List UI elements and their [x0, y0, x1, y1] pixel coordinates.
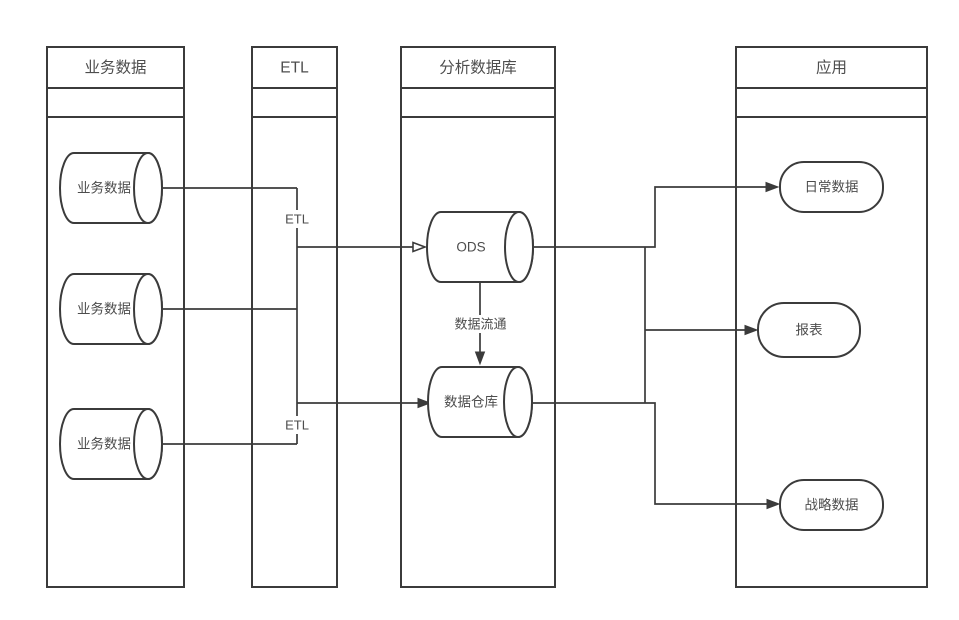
cylinder-business-data-2: 业务数据: [60, 274, 162, 344]
cylinder-business-data-1: 业务数据: [60, 153, 162, 223]
svg-text:ETL: ETL: [285, 418, 309, 433]
dataflow-diagram: 业务数据 ETL 分析数据库 应用: [0, 0, 959, 620]
node-label: 战略数据: [805, 498, 859, 513]
edge-label-data-flow: 数据流通: [451, 315, 510, 333]
cylinder-label: 业务数据: [77, 437, 131, 452]
edge-warehouse-to-strategy: [532, 403, 767, 504]
lane-title-application: 应用: [816, 58, 847, 77]
cylinder-label: 数据仓库: [444, 395, 498, 410]
cylinder-label: ODS: [456, 240, 485, 255]
diagram-canvas: 业务数据 ETL 分析数据库 应用: [0, 0, 959, 620]
cylinder-label: 业务数据: [77, 181, 131, 196]
node-report: 报表: [758, 303, 860, 357]
node-daily-data: 日常数据: [780, 162, 883, 212]
node-strategic-data: 战略数据: [780, 480, 883, 530]
lane-etl: ETL: [252, 47, 337, 587]
svg-text:数据流通: 数据流通: [454, 317, 506, 332]
edge-label-etl-top: ETL: [282, 210, 312, 228]
edge-label-etl-bottom: ETL: [282, 416, 312, 434]
node-label: 报表: [796, 323, 824, 338]
lane-title-business-data: 业务数据: [84, 59, 146, 77]
svg-text:ETL: ETL: [285, 212, 309, 227]
node-label: 日常数据: [805, 180, 859, 195]
cylinder-label: 业务数据: [77, 302, 131, 317]
edge-ods-to-daily: [533, 187, 766, 247]
lane-title-analysis-database: 分析数据库: [439, 59, 517, 77]
lane-title-etl: ETL: [280, 60, 309, 77]
cylinder-ods: ODS: [427, 212, 533, 282]
cylinder-data-warehouse: 数据仓库: [428, 367, 532, 437]
cylinder-business-data-3: 业务数据: [60, 409, 162, 479]
